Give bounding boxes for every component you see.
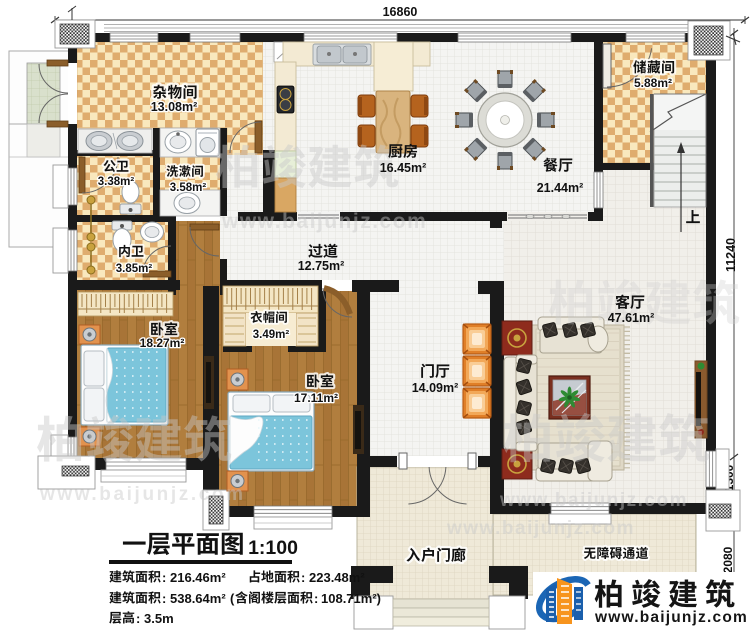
svg-text::: : [136, 611, 140, 626]
svg-text:17.11m²: 17.11m² [294, 391, 338, 405]
svg-text:14.09m²: 14.09m² [412, 381, 459, 395]
svg-text::: : [301, 570, 305, 585]
svg-text:(: ( [230, 591, 235, 606]
svg-text:216.46m²: 216.46m² [170, 570, 226, 585]
svg-text:3.85m²: 3.85m² [116, 263, 153, 275]
svg-text:www.baijunjz.com: www.baijunjz.com [594, 609, 748, 626]
svg-text::: : [162, 570, 166, 585]
svg-text:5.88m²: 5.88m² [634, 76, 672, 90]
svg-text:18.27m²: 18.27m² [140, 336, 185, 350]
svg-text:12.75m²: 12.75m² [298, 259, 345, 273]
svg-text:21.44m²: 21.44m² [537, 181, 584, 195]
svg-text:3.38m²: 3.38m² [98, 176, 135, 188]
svg-text:www.baijunjz.com: www.baijunjz.com [39, 484, 246, 505]
svg-text:3.5m: 3.5m [144, 611, 174, 626]
svg-text:3.58m²: 3.58m² [170, 182, 207, 194]
svg-text::: : [162, 591, 166, 606]
svg-text:2080: 2080 [721, 546, 735, 573]
svg-text:1:100: 1:100 [248, 537, 298, 559]
svg-text:11240: 11240 [724, 238, 738, 272]
svg-text:16.45m²: 16.45m² [380, 161, 427, 175]
svg-text:3.49m²: 3.49m² [253, 329, 290, 341]
svg-text:www.baijunjz.com: www.baijunjz.com [446, 518, 635, 539]
svg-text:223.48m²: 223.48m² [309, 570, 365, 585]
svg-text:16860: 16860 [383, 5, 418, 19]
svg-text::: : [314, 591, 318, 606]
svg-text:www.baijunjz.com: www.baijunjz.com [221, 210, 427, 233]
svg-text:47.61m²: 47.61m² [608, 311, 655, 325]
svg-text:108.71m²): 108.71m²) [321, 591, 381, 606]
svg-text:538.64m²: 538.64m² [170, 591, 226, 606]
svg-text:13.08m²: 13.08m² [151, 100, 198, 114]
svg-text:www.baijunjz.com: www.baijunjz.com [499, 490, 688, 511]
